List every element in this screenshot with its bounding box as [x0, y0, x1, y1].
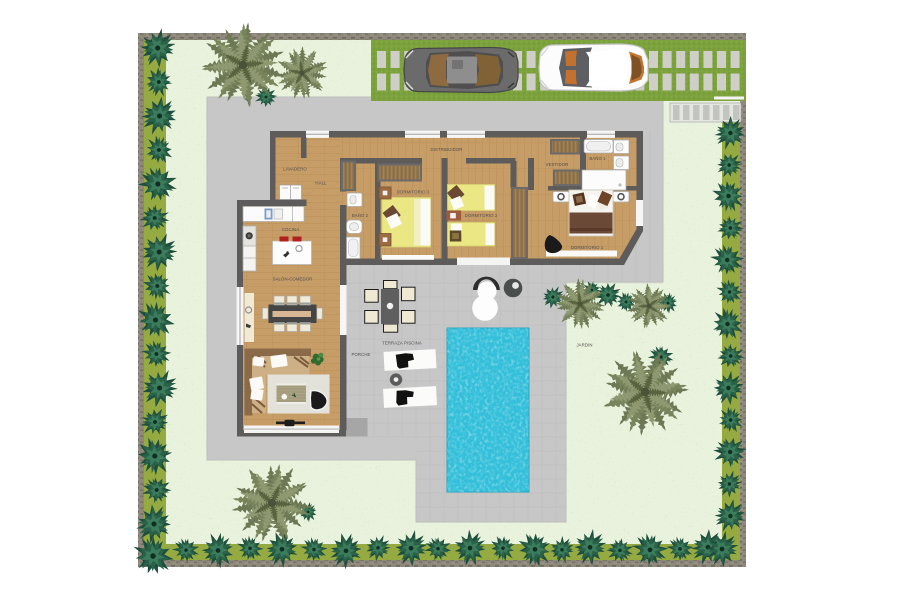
svg-text:TERRAZA PISCINA: TERRAZA PISCINA [382, 341, 422, 346]
svg-text:PORCHE: PORCHE [352, 352, 371, 357]
svg-text:DORMITORIO 3: DORMITORIO 3 [397, 190, 430, 195]
svg-text:BAÑO 1: BAÑO 1 [589, 156, 606, 161]
svg-text:LAVADERO: LAVADERO [283, 167, 307, 172]
svg-text:DORMITORIO 1: DORMITORIO 1 [571, 245, 604, 250]
svg-text:SALÓN-COMEDOR: SALÓN-COMEDOR [273, 277, 313, 282]
svg-text:JARDIN: JARDIN [576, 343, 592, 348]
svg-text:HALL: HALL [315, 181, 327, 186]
svg-text:COCINA: COCINA [282, 227, 299, 232]
svg-text:BAÑO 2: BAÑO 2 [352, 213, 369, 218]
svg-text:DISTRIBUIDOR: DISTRIBUIDOR [431, 147, 463, 152]
svg-text:DORMITORIO 2: DORMITORIO 2 [465, 213, 498, 218]
svg-text:VESTIDOR: VESTIDOR [546, 162, 569, 167]
